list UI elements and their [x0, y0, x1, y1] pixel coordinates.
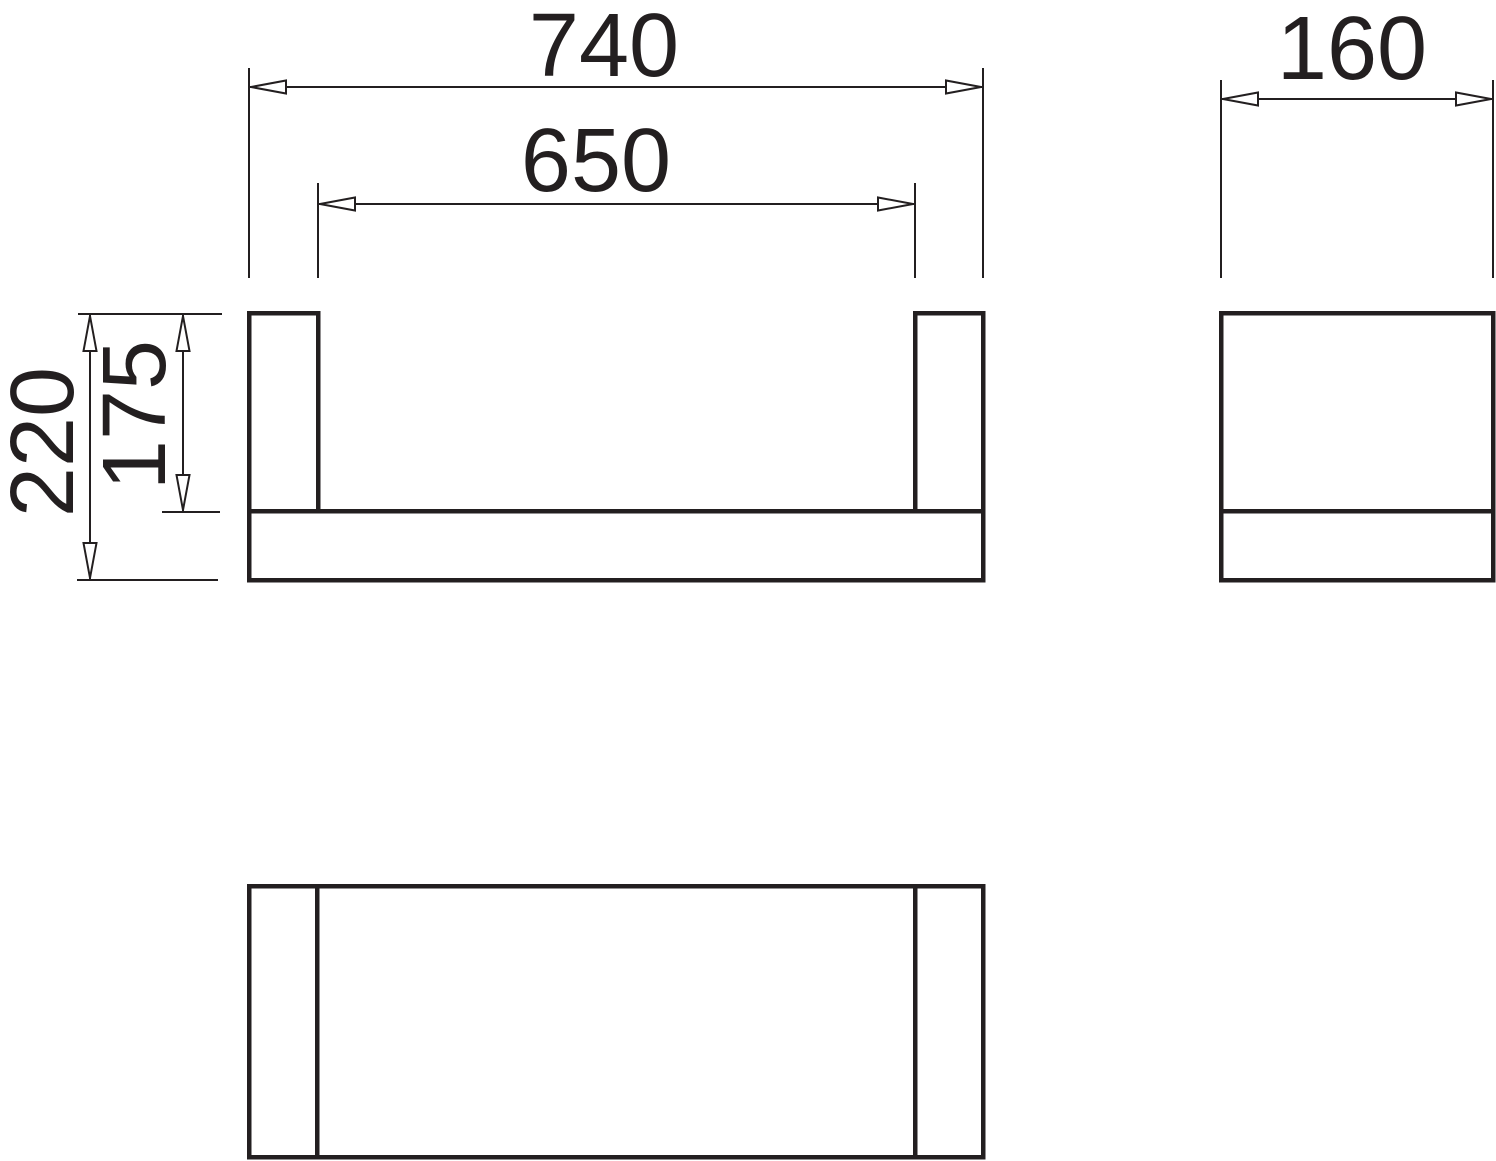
object-outlines [249, 313, 1493, 1157]
arrowhead-left-icon [320, 198, 355, 211]
plan-view-outline [249, 886, 983, 1157]
side-view-outline [1221, 313, 1493, 580]
dimension-arrowheads [84, 81, 1492, 579]
technical-drawing-canvas: 740 650 160 220 175 [0, 0, 1496, 1161]
dimension-lines [77, 68, 1493, 580]
arrowhead-right-icon [878, 198, 913, 211]
arrowhead-right-icon [946, 81, 981, 94]
arrowhead-down-icon [84, 543, 97, 578]
drawing-geometry [0, 0, 1496, 1161]
dimension-160 [1221, 80, 1493, 278]
dim-label-overall-height: 220 [0, 357, 88, 527]
side-view [1221, 313, 1493, 580]
dim-label-depth: 160 [1267, 4, 1437, 94]
arrowhead-left-icon [251, 81, 286, 94]
front-view-left-post [249, 313, 318, 511]
plan-view [249, 886, 983, 1157]
arrowhead-left-icon [1223, 93, 1258, 106]
dim-label-overall-width: 740 [519, 1, 689, 91]
dim-label-inner-height: 175 [90, 330, 180, 500]
dim-label-inner-width: 650 [511, 116, 681, 206]
arrowhead-right-icon [1456, 93, 1491, 106]
front-view-right-post [915, 313, 983, 511]
front-view [249, 313, 983, 580]
front-view-bottom-bar [249, 511, 983, 580]
